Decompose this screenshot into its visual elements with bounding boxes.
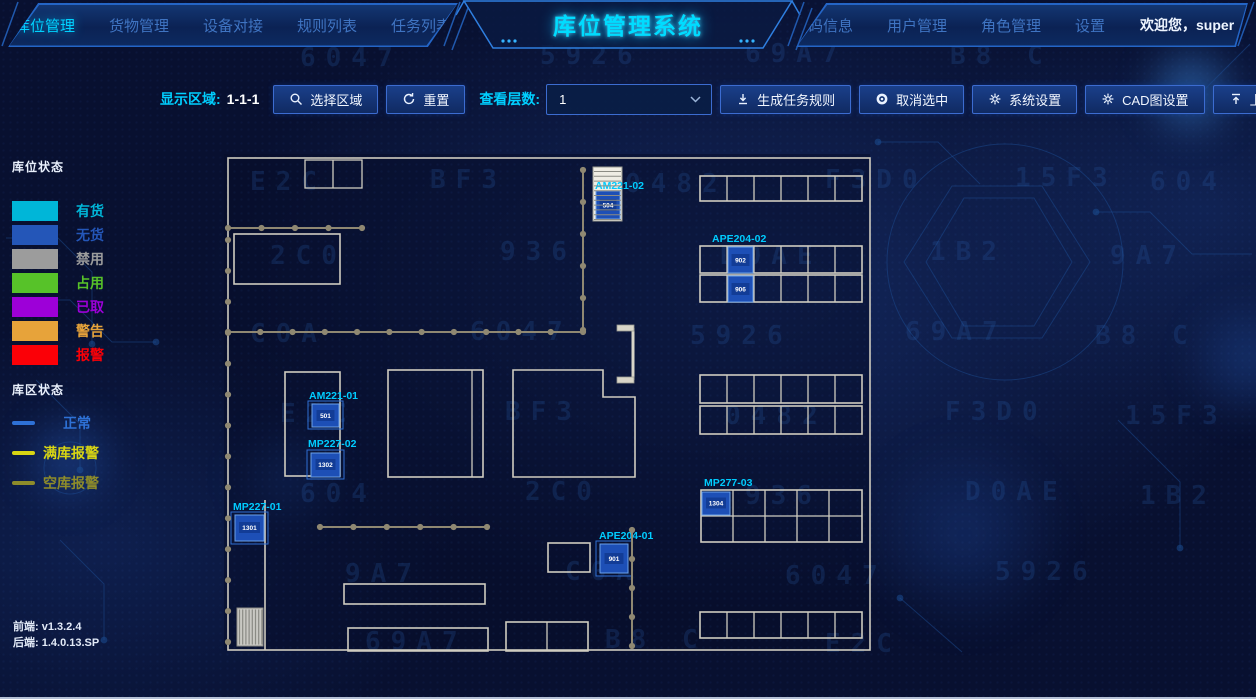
refresh-icon bbox=[402, 92, 416, 106]
hex-glyph: 15F3 bbox=[1015, 163, 1118, 193]
wall-post bbox=[580, 199, 586, 205]
wall-post bbox=[451, 329, 457, 335]
hex-glyph: 69A7 bbox=[905, 317, 1008, 347]
wall-post bbox=[225, 237, 231, 243]
wall-post bbox=[629, 556, 635, 562]
cell-number: 1304 bbox=[709, 501, 724, 508]
system-settings-button[interactable]: 系统设置 bbox=[972, 85, 1077, 114]
wall-post bbox=[225, 484, 231, 490]
wall-post bbox=[484, 524, 490, 530]
wall-post bbox=[417, 524, 423, 530]
cell-number: 1302 bbox=[318, 462, 333, 469]
display-area-label: 显示区域: bbox=[160, 89, 221, 109]
hex-glyph: 1B2 bbox=[1140, 481, 1217, 511]
wall-post bbox=[292, 225, 298, 231]
wall-post bbox=[580, 231, 586, 237]
wall-post bbox=[225, 225, 231, 231]
wall-post bbox=[580, 263, 586, 269]
zone-label: MP277-03 bbox=[704, 477, 753, 489]
wall-post bbox=[451, 524, 457, 530]
wall-post bbox=[225, 577, 231, 583]
wall-post bbox=[515, 329, 521, 335]
hex-glyph: 1B2 bbox=[930, 237, 1007, 267]
cell-number: 902 bbox=[735, 258, 746, 265]
legend-panel: 库位状态 有货 无货 禁用 占用 已取 bbox=[12, 158, 162, 498]
wall-post bbox=[384, 524, 390, 530]
wall-post bbox=[225, 422, 231, 428]
location-status-title: 库位状态 bbox=[12, 158, 162, 175]
wall-post bbox=[386, 329, 392, 335]
legend-item-full-alarm: 满库报警 bbox=[12, 438, 162, 468]
wall-post bbox=[258, 225, 264, 231]
wall-post bbox=[419, 329, 425, 335]
color-swatch bbox=[12, 297, 58, 317]
legend-item-taken: 已取 bbox=[12, 297, 162, 317]
zone-label: APE204-01 bbox=[599, 530, 653, 542]
zone-label: MP227-02 bbox=[308, 438, 357, 450]
wall-post bbox=[629, 527, 635, 533]
color-swatch bbox=[12, 201, 58, 221]
gear-icon bbox=[988, 92, 1002, 106]
wall-post bbox=[225, 546, 231, 552]
wall-post bbox=[225, 329, 231, 335]
cancel-selection-button[interactable]: 取消选中 bbox=[859, 85, 964, 114]
cad-settings-button[interactable]: CAD图设置 bbox=[1085, 85, 1204, 114]
view-layers-label: 查看层数: bbox=[479, 89, 540, 109]
rack[interactable] bbox=[548, 543, 590, 572]
legend-item-has-goods: 有货 bbox=[12, 201, 162, 221]
wall-post bbox=[325, 225, 331, 231]
wall-post bbox=[322, 329, 328, 335]
header-decor bbox=[0, 0, 1256, 56]
color-swatch bbox=[12, 249, 58, 269]
room[interactable] bbox=[513, 370, 635, 477]
wall-post bbox=[289, 329, 295, 335]
wall-post bbox=[225, 608, 231, 614]
cell-number: 501 bbox=[320, 413, 331, 420]
generate-task-rule-button[interactable]: 生成任务规则 bbox=[720, 85, 851, 114]
reset-button[interactable]: 重置 bbox=[386, 85, 465, 114]
wall-post bbox=[225, 361, 231, 367]
zone-label: AM221-01 bbox=[309, 390, 358, 402]
wall-post bbox=[225, 639, 231, 645]
toolbar: 显示区域: 1-1-1 选择区域 重置 查看层数: 1 生成任务规则 bbox=[160, 84, 1256, 114]
color-swatch bbox=[12, 225, 58, 245]
gear-icon bbox=[1101, 92, 1115, 106]
wall-post bbox=[225, 453, 231, 459]
legend-item-empty-alarm: 空库报警 bbox=[12, 468, 162, 498]
rack[interactable] bbox=[344, 584, 485, 604]
display-area-value: 1-1-1 bbox=[227, 91, 260, 107]
wall-post bbox=[629, 643, 635, 649]
download-icon bbox=[736, 92, 750, 106]
wall-post bbox=[225, 299, 231, 305]
color-swatch bbox=[12, 273, 58, 293]
select-area-button[interactable]: 选择区域 bbox=[273, 85, 378, 114]
legend-item-occupied: 占用 bbox=[12, 273, 162, 293]
cell-number: 1301 bbox=[242, 525, 257, 532]
upload-icon bbox=[1229, 92, 1243, 106]
wall-post bbox=[317, 524, 323, 530]
search-icon bbox=[289, 92, 303, 106]
zone-label: APE204-02 bbox=[712, 233, 766, 245]
zone-status-title: 库区状态 bbox=[12, 381, 162, 398]
legend-item-disabled: 禁用 bbox=[12, 249, 162, 269]
hex-glyph: 5926 bbox=[995, 557, 1098, 587]
header: 库位管理 货物管理 设备对接 规则列表 任务列表 库位 bbox=[0, 0, 1256, 54]
hex-glyph: 9A7 bbox=[1110, 241, 1187, 271]
legend-item-alarm: 报警 bbox=[12, 345, 162, 365]
zone-label: MP227-01 bbox=[233, 501, 282, 513]
wall-post bbox=[359, 225, 365, 231]
cell-number: 504 bbox=[603, 203, 614, 210]
rack[interactable] bbox=[348, 628, 488, 651]
legend-item-normal: 正常 bbox=[12, 408, 162, 438]
chevron-down-icon bbox=[690, 96, 701, 103]
room[interactable] bbox=[234, 234, 340, 284]
frontend-version: 前端: v1.3.2.4 bbox=[13, 619, 99, 635]
wall-post bbox=[629, 614, 635, 620]
wall-post bbox=[629, 585, 635, 591]
wall-post bbox=[350, 524, 356, 530]
wall-post bbox=[483, 329, 489, 335]
upload-file-button[interactable]: 上传文件 bbox=[1213, 85, 1256, 114]
location-status-list: 有货 无货 禁用 占用 已取 警告 bbox=[12, 201, 162, 365]
hex-glyph: F3D0 bbox=[945, 397, 1048, 427]
color-swatch bbox=[12, 321, 58, 341]
line-swatch bbox=[12, 481, 35, 485]
wall-post bbox=[580, 295, 586, 301]
wall-post bbox=[548, 329, 554, 335]
view-layers-value: 1 bbox=[559, 92, 566, 107]
wall-post bbox=[225, 268, 231, 274]
color-swatch bbox=[12, 345, 58, 365]
hex-glyph: 604 bbox=[1150, 167, 1227, 197]
version-info: 前端: v1.3.2.4 后端: 1.4.0.13.SP bbox=[13, 619, 99, 651]
line-swatch bbox=[12, 451, 35, 455]
line-swatch bbox=[12, 421, 35, 425]
warehouse-management-screen: 6047592669A7B8 CE2CBF30482F3D015F36042C0… bbox=[0, 0, 1256, 699]
cell-number: 901 bbox=[609, 556, 620, 563]
cancel-circle-icon bbox=[875, 92, 889, 106]
wall-post bbox=[225, 392, 231, 398]
room[interactable] bbox=[388, 370, 483, 477]
hex-glyph: B8 C bbox=[1095, 321, 1198, 351]
backend-version: 后端: 1.4.0.13.SP bbox=[13, 635, 99, 651]
hex-glyph: 15F3 bbox=[1125, 401, 1228, 431]
wall-post bbox=[257, 329, 263, 335]
wall-post bbox=[580, 167, 586, 173]
zone-status-list: 正常 满库报警 空库报警 bbox=[12, 408, 162, 498]
view-layers-select[interactable]: 1 bbox=[546, 84, 712, 115]
wall-post bbox=[580, 327, 586, 333]
hex-glyph: D0AE bbox=[965, 477, 1068, 507]
warehouse-map[interactable]: 504 AM221-02 APE204-02 902 906 AM221-01 … bbox=[222, 150, 882, 655]
legend-item-no-goods: 无货 bbox=[12, 225, 162, 245]
wall-post bbox=[225, 515, 231, 521]
cell-number: 906 bbox=[735, 287, 746, 294]
wall-post bbox=[354, 329, 360, 335]
legend-item-warning: 警告 bbox=[12, 321, 162, 341]
